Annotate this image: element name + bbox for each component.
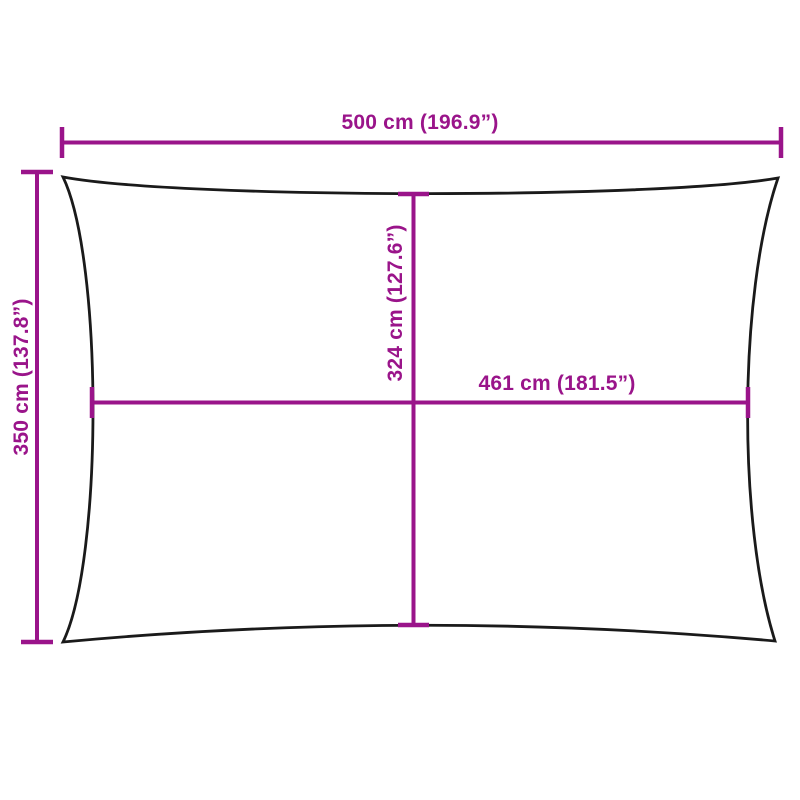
left-height-label: 350 cm (137.8”): [10, 298, 34, 455]
dimension-diagram: 500 cm (196.9”) 350 cm (137.8”) 324 cm (…: [0, 0, 800, 800]
inner-width-label: 461 cm (181.5”): [478, 372, 635, 396]
sail-outline: [63, 177, 778, 642]
top-width-label: 500 cm (196.9”): [341, 111, 498, 135]
inner-height-label: 324 cm (127.6”): [384, 224, 408, 381]
